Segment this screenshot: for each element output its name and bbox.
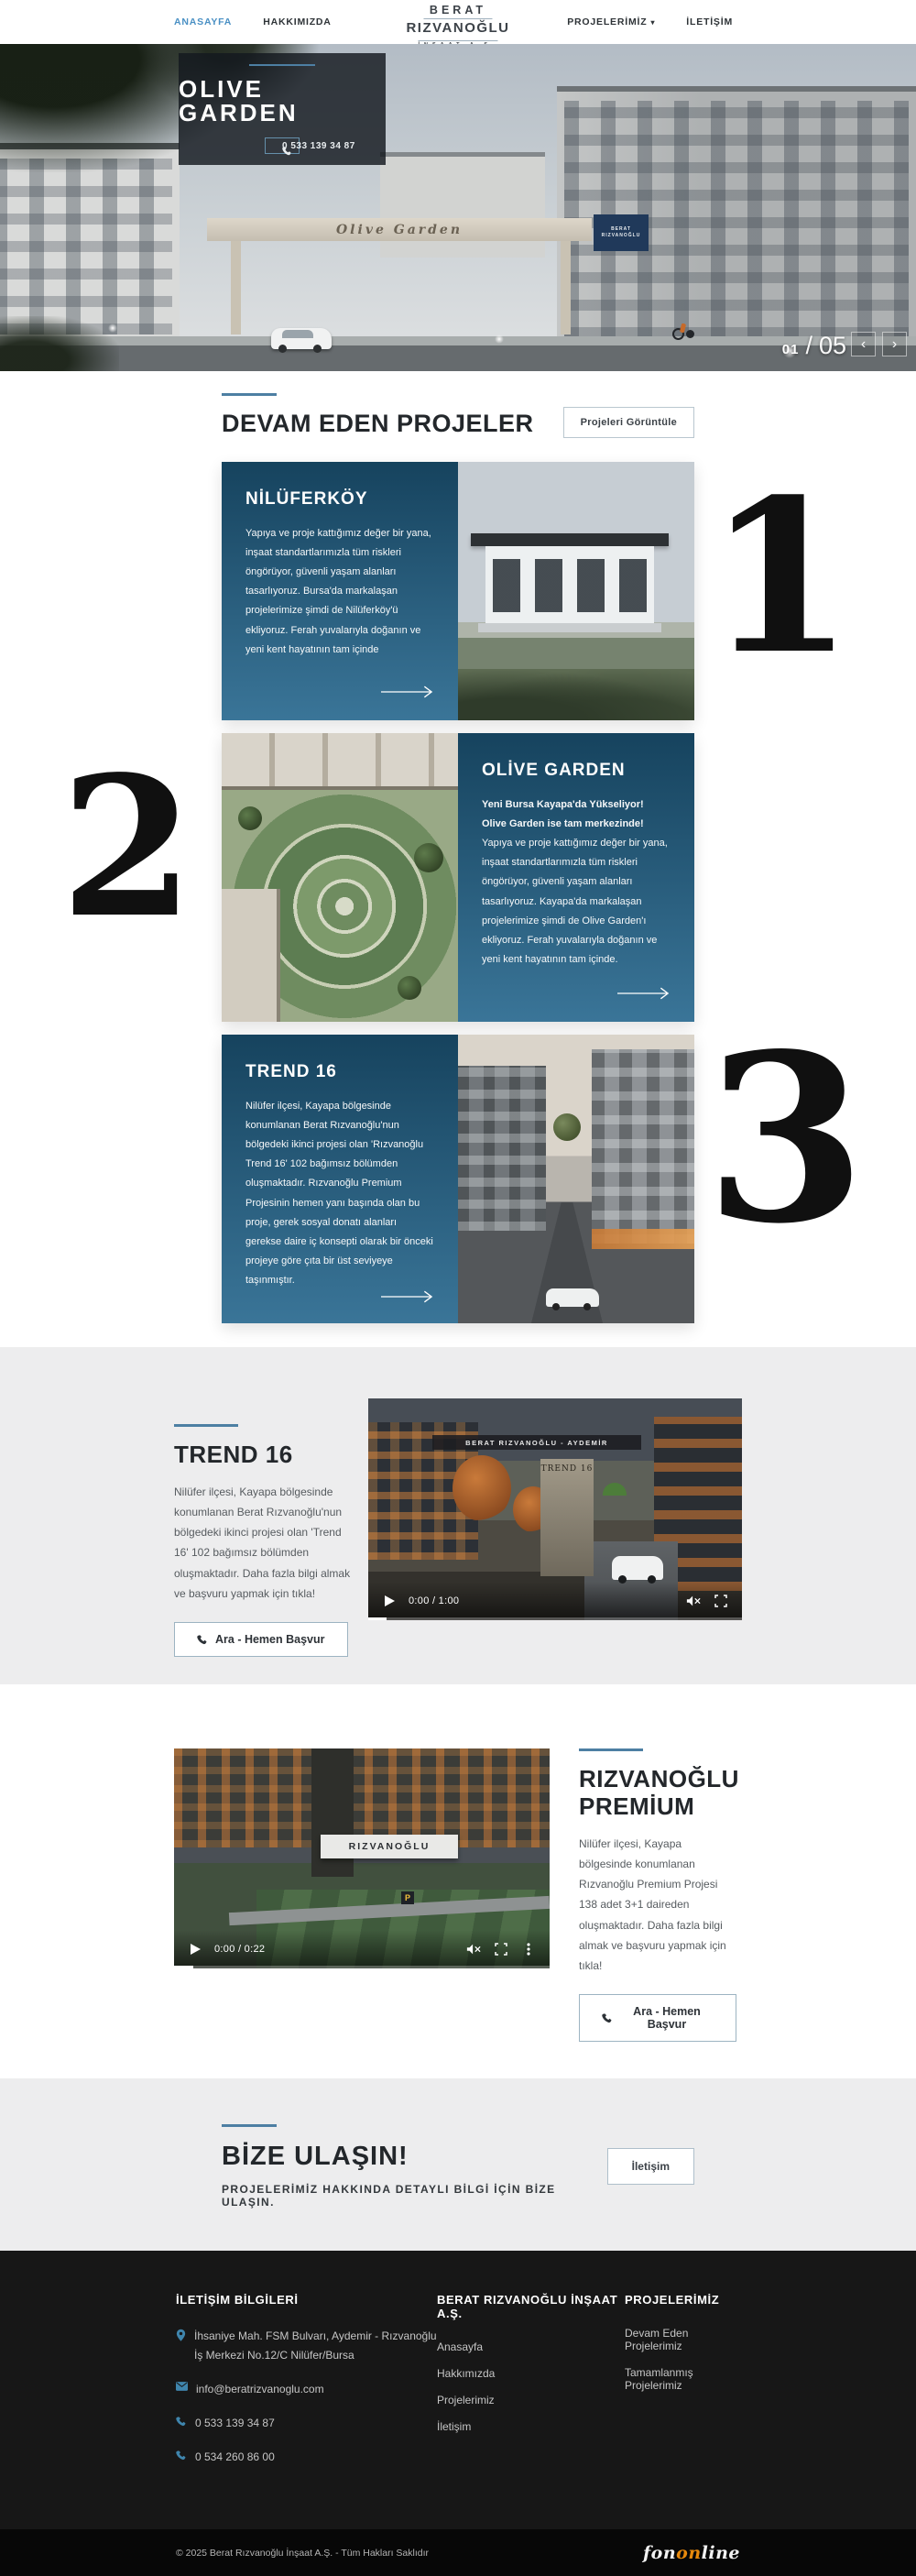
contact-button[interactable]: İletişim — [607, 2148, 694, 2185]
premium-heading: RIZVANOĞLUPREMİUM — [579, 1766, 736, 1821]
arrow-right-icon[interactable] — [381, 1290, 434, 1303]
street-building-right — [592, 1049, 694, 1244]
chevron-down-icon: ▾ — [650, 18, 655, 27]
hero-gate-column — [231, 241, 241, 334]
hero-divider — [249, 64, 315, 66]
nav-left: ANASAYFA HAKKIMIZDA — [174, 0, 332, 44]
footer-address: İhsaniye Mah. FSM Bulvarı, Aydemir - Rız… — [194, 2327, 437, 2365]
card-text-panel: OLİVE GARDEN Yeni Bursa Kayapa'da Yüksel… — [458, 733, 694, 1022]
hero-gate-sign: Olive Garden — [207, 218, 592, 241]
hero-board-line1: BERAT — [611, 227, 631, 232]
footer-email-row[interactable]: info@beratrizvanoglu.com — [176, 2380, 437, 2399]
slider-next-button[interactable]: › — [882, 332, 907, 356]
card-body-bold: Yeni Bursa Kayapa'da Yükseliyor! Olive G… — [482, 799, 644, 829]
hero-car — [271, 328, 332, 349]
card-number: 1 — [707, 499, 854, 657]
hero-gate-column — [561, 241, 571, 334]
footer-link-tamamlanmis[interactable]: Tamamlanmış Projelerimiz — [625, 2366, 740, 2392]
nav-projelerimiz-label: PROJELERİMİZ — [567, 16, 647, 27]
video-time: 0:00 / 0:22 — [214, 1944, 265, 1955]
contact-cta-section: BİZE ULAŞIN! PROJELERİMİZ HAKKINDA DETAY… — [0, 2078, 916, 2251]
envelope-icon — [176, 2382, 188, 2391]
call-apply-label: Ara - Hemen Başvur — [215, 1633, 325, 1646]
nav-anasayfa[interactable]: ANASAYFA — [174, 16, 232, 27]
brand-logo[interactable]: BERAT RIZVANOĞLU İNŞAAT A.Ş. — [406, 3, 509, 49]
hero-phone-button[interactable]: 0 533 139 34 87 — [265, 137, 300, 154]
premium-heading-line1: RIZVANOĞLU — [579, 1765, 739, 1792]
agency-logo-part1: fon — [643, 2543, 676, 2563]
card-image — [222, 733, 458, 1022]
card-number: 2 — [60, 775, 194, 920]
section-divider — [174, 1424, 238, 1427]
video-car — [612, 1556, 663, 1580]
nav-hakkimizda[interactable]: HAKKIMIZDA — [263, 16, 332, 27]
play-icon[interactable] — [381, 1593, 398, 1609]
slider-prev-button[interactable]: ‹ — [851, 332, 876, 356]
footer-link-projelerimiz[interactable]: Projelerimiz — [437, 2394, 625, 2406]
trend16-section: TREND 16 Nilüfer ilçesi, Kayapa bölgesin… — [0, 1347, 916, 1684]
trend16-heading: TREND 16 — [174, 1441, 354, 1469]
hero-building-left — [0, 143, 180, 344]
map-pin-icon — [176, 2329, 186, 2341]
footer-sitemap-column: BERAT RIZVANOĞLU İNŞAAT A.Ş. Anasayfa Ha… — [437, 2293, 625, 2482]
hero-building-mid — [380, 152, 545, 258]
hero-road — [0, 336, 916, 371]
section-divider — [222, 2124, 277, 2127]
trend16-body: Nilüfer ilçesi, Kayapa bölgesinde konuml… — [174, 1482, 354, 1604]
tree — [553, 1113, 581, 1141]
copyright-text: © 2025 Berat Rızvanoğlu İnşaat A.Ş. - Tü… — [176, 2548, 429, 2559]
card-body: Yapıya ve proje kattığımız değer bir yan… — [245, 524, 434, 660]
header: ANASAYFA HAKKIMIZDA BERAT RIZVANOĞLU İNŞ… — [0, 0, 916, 44]
video-progress-bar[interactable] — [368, 1617, 742, 1620]
premium-heading-line2: PREMİUM — [579, 1792, 694, 1820]
footer-link-hakkimizda[interactable]: Hakkımızda — [437, 2367, 625, 2380]
footer-link-iletisim[interactable]: İletişim — [437, 2420, 625, 2433]
contact-cta-heading: BİZE ULAŞIN! — [222, 2142, 607, 2172]
street-render — [458, 1035, 694, 1323]
hero-bush — [0, 316, 119, 371]
villa-body — [485, 546, 654, 623]
video-time: 0:00 / 1:00 — [409, 1595, 459, 1606]
contact-cta-text: BİZE ULAŞIN! PROJELERİMİZ HAKKINDA DETAY… — [222, 2124, 607, 2209]
project-card-olive-garden[interactable]: 2 OLİVE GARDEN Yeni Bursa Kayapa'da Yüks… — [222, 733, 694, 1022]
mute-icon[interactable] — [685, 1593, 702, 1609]
chevron-right-icon: › — [892, 336, 897, 353]
hero-title: OLIVE GARDEN — [179, 77, 386, 125]
card-title: TREND 16 — [245, 1062, 434, 1082]
card-title: NİLÜFERKÖY — [245, 489, 434, 510]
agency-logo-part2: on — [676, 2543, 702, 2563]
card-body-rest: Yapıya ve proje kattığımız değer bir yan… — [482, 838, 668, 965]
street-lit-shop — [592, 1229, 694, 1249]
premium-body: Nilüfer ilçesi, Kayapa bölgesinde konuml… — [579, 1834, 736, 1976]
phone-icon — [197, 1634, 208, 1645]
card-body: Nilüfer ilçesi, Kayapa bölgesinde konuml… — [245, 1097, 434, 1290]
play-icon[interactable] — [187, 1941, 203, 1957]
umbrella — [603, 1483, 627, 1496]
phone-icon — [176, 2416, 187, 2427]
tree — [238, 806, 262, 830]
copyright-bar: © 2025 Berat Rızvanoğlu İnşaat A.Ş. - Tü… — [0, 2529, 916, 2576]
footer-phone2: 0 534 260 86 00 — [195, 2448, 275, 2467]
trend16-video-player[interactable]: BERAT RIZVANOĞLU - AYDEMİR TREND 16 0:00… — [368, 1398, 742, 1620]
tree — [398, 976, 421, 1000]
call-apply-label: Ara - Hemen Başvur — [620, 2005, 714, 2031]
phone-icon — [602, 2012, 613, 2023]
hero-caption: OLIVE GARDEN 0 533 139 34 87 — [179, 53, 386, 165]
premium-section: RIZVANOĞLU P 0:00 / 0:22 RIZVANOĞLUPREMİ… — [0, 1684, 916, 2078]
video-progress-bar[interactable] — [174, 1966, 550, 1968]
autumn-tree — [453, 1455, 511, 1521]
card-body: Yeni Bursa Kayapa'da Yükseliyor! Olive G… — [482, 795, 671, 970]
mute-icon[interactable] — [465, 1941, 482, 1957]
street-car — [546, 1288, 599, 1307]
section-divider — [579, 1748, 643, 1751]
call-apply-button[interactable]: Ara - Hemen Başvur — [579, 1994, 736, 2042]
project-card-trend16[interactable]: 3 TREND 16 Nilüfer ilçesi, Kayapa bölges… — [222, 1035, 694, 1323]
hero-lamp-glow — [495, 334, 504, 344]
premium-canopy-sign: RIZVANOĞLU — [321, 1835, 458, 1858]
villa-deck — [478, 623, 661, 632]
footer-phone-row[interactable]: 0 534 260 86 00 — [176, 2448, 437, 2467]
view-projects-button[interactable]: Projeleri Görüntüle — [563, 407, 694, 438]
section-title: DEVAM EDEN PROJELER — [222, 410, 534, 438]
nav-projelerimiz[interactable]: PROJELERİMİZ▾ — [567, 16, 655, 27]
call-apply-button[interactable]: Ara - Hemen Başvur — [174, 1622, 348, 1657]
page: ANASAYFA HAKKIMIZDA BERAT RIZVANOĞLU İNŞ… — [0, 0, 916, 2576]
footer-heading: BERAT RIZVANOĞLU İNŞAAT A.Ş. — [437, 2293, 625, 2320]
slide-current: 01 — [782, 342, 800, 357]
villa-roof — [471, 533, 669, 546]
fullscreen-icon[interactable] — [713, 1593, 729, 1609]
arrow-right-icon[interactable] — [617, 987, 671, 1000]
chevron-left-icon: ‹ — [861, 336, 866, 353]
logo-line2: RIZVANOĞLU — [406, 21, 509, 35]
street-building-left — [458, 1066, 546, 1231]
contact-cta-subheading: PROJELERİMİZ HAKKINDA DETAYLI BİLGİ İÇİN… — [222, 2183, 607, 2209]
hero-gate-sign-text: Olive Garden — [336, 223, 463, 237]
slide-total: 05 — [819, 332, 846, 360]
footer-email: info@beratrizvanoglu.com — [196, 2380, 324, 2399]
footer-heading: İLETİŞİM BİLGİLERİ — [176, 2293, 437, 2307]
video-buildings — [174, 1748, 550, 1847]
agency-logo-part3: line — [702, 2543, 740, 2563]
footer-link-anasayfa[interactable]: Anasayfa — [437, 2340, 625, 2353]
nav-iletisim[interactable]: İLETİŞİM — [686, 16, 733, 27]
video-gate-sign: BERAT RIZVANOĞLU - AYDEMİR — [432, 1435, 641, 1450]
slide-counter: 01 / 05 — [782, 332, 846, 360]
phone-icon — [176, 2450, 187, 2461]
kebab-menu-icon[interactable] — [520, 1941, 537, 1957]
hero-lamp-glow — [108, 323, 117, 333]
section-divider — [222, 393, 277, 396]
logo-line1: BERAT — [424, 3, 492, 19]
card-title: OLİVE GARDEN — [482, 761, 671, 781]
footer-link-devam-eden[interactable]: Devam Eden Projelerimiz — [625, 2327, 740, 2352]
arrow-right-icon[interactable] — [381, 685, 434, 698]
video-controls: 0:00 / 0:22 — [174, 1930, 550, 1968]
hero-cyclist — [672, 322, 696, 340]
hero-brand-board: BERAT RIZVANOĞLU — [594, 214, 649, 251]
villa-hedge — [458, 669, 694, 720]
nav-right: PROJELERİMİZ▾ İLETİŞİM — [567, 0, 733, 44]
video-controls: 0:00 / 1:00 — [368, 1582, 742, 1620]
premium-video-player[interactable]: RIZVANOĞLU P 0:00 / 0:22 — [174, 1748, 550, 1968]
villa-render — [458, 462, 694, 720]
ongoing-projects-section: DEVAM EDEN PROJELER Projeleri Görüntüle … — [0, 371, 916, 1347]
tree — [414, 843, 443, 872]
footer-address-row: İhsaniye Mah. FSM Bulvarı, Aydemir - Rız… — [176, 2327, 437, 2365]
aerial-garden-render — [222, 733, 458, 1022]
aerial-building-left — [222, 889, 280, 1022]
parking-sign: P — [401, 1891, 414, 1904]
footer-heading: PROJELERİMİZ — [625, 2293, 740, 2307]
hero-slider: Olive Garden BERAT RIZVANOĞLU OLIVE GARD… — [0, 44, 916, 371]
card-image — [458, 462, 694, 720]
footer-projects-column: PROJELERİMİZ Devam Eden Projelerimiz Tam… — [625, 2293, 740, 2482]
fullscreen-icon[interactable] — [493, 1941, 509, 1957]
card-image — [458, 1035, 694, 1323]
trend16-monument: TREND 16 — [540, 1459, 594, 1576]
footer-contact-column: İLETİŞİM BİLGİLERİ İhsaniye Mah. FSM Bul… — [176, 2293, 437, 2482]
hero-phone-label: 0 533 139 34 87 — [282, 141, 355, 151]
hero-board-line2: RIZVANOĞLU — [602, 234, 641, 238]
agency-logo[interactable]: fononline — [643, 2543, 740, 2563]
footer: İLETİŞİM BİLGİLERİ İhsaniye Mah. FSM Bul… — [0, 2251, 916, 2529]
footer-phone-row[interactable]: 0 533 139 34 87 — [176, 2414, 437, 2433]
card-text-panel: TREND 16 Nilüfer ilçesi, Kayapa bölgesin… — [222, 1035, 458, 1323]
card-number: 3 — [705, 1053, 866, 1226]
premium-text-column: RIZVANOĞLUPREMİUM Nilüfer ilçesi, Kayapa… — [568, 1748, 751, 2042]
project-card-niluferkoy[interactable]: 1 NİLÜFERKÖY Yapıya ve proje kattığımız … — [222, 462, 694, 720]
slide-separator: / — [805, 332, 812, 360]
trend16-text-column: TREND 16 Nilüfer ilçesi, Kayapa bölgesin… — [174, 1398, 368, 1657]
card-text-panel: NİLÜFERKÖY Yapıya ve proje kattığımız de… — [222, 462, 458, 720]
footer-phone1: 0 533 139 34 87 — [195, 2414, 275, 2433]
aerial-buildings — [222, 733, 458, 790]
